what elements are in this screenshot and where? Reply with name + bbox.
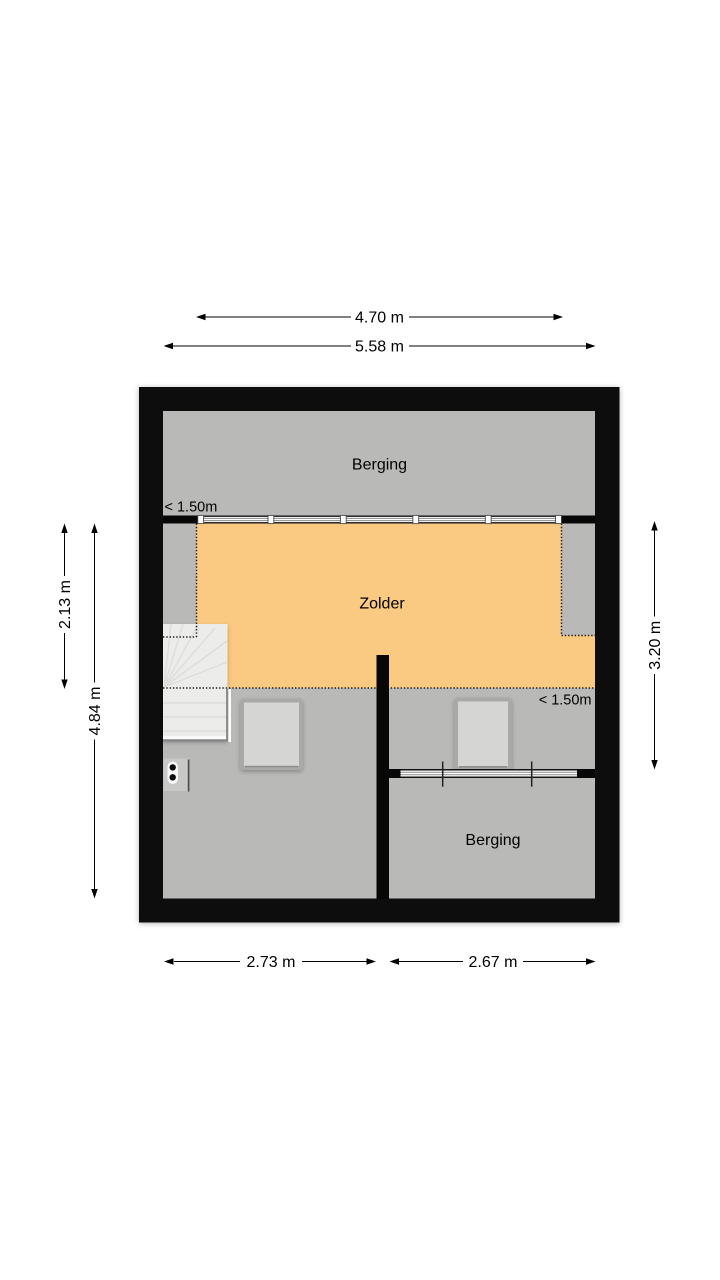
svg-text:4.84 m: 4.84 m — [87, 687, 104, 736]
svg-text:Zolder: Zolder — [359, 596, 405, 613]
svg-text:< 1.50m: < 1.50m — [539, 692, 592, 708]
svg-text:Berging: Berging — [352, 456, 407, 473]
svg-text:Berging: Berging — [465, 832, 520, 849]
svg-text:2.13 m: 2.13 m — [57, 580, 74, 629]
svg-text:2.67 m: 2.67 m — [469, 954, 518, 971]
svg-text:2.73 m: 2.73 m — [247, 954, 296, 971]
svg-text:< 1.50m: < 1.50m — [165, 500, 218, 516]
svg-text:5.58 m: 5.58 m — [355, 339, 404, 356]
svg-text:3.20 m: 3.20 m — [647, 621, 664, 670]
svg-text:4.70 m: 4.70 m — [355, 310, 404, 327]
